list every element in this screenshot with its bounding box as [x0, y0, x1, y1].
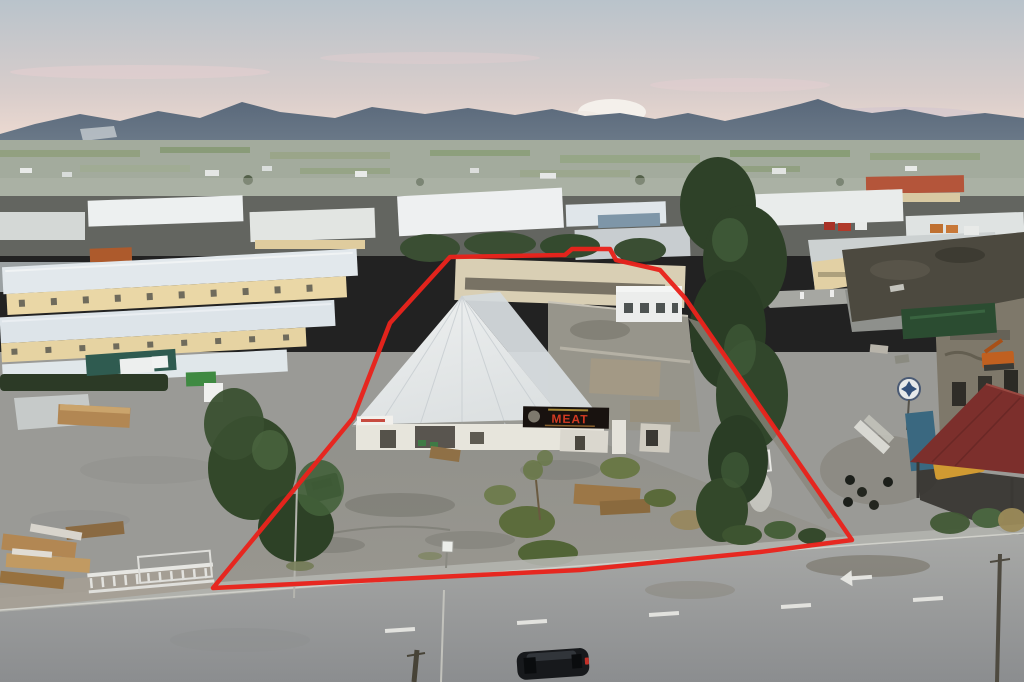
roof-mottle: [870, 260, 930, 280]
tree-highlight: [252, 430, 288, 470]
distant-building: [772, 168, 786, 174]
flat-roof-stain: [570, 320, 630, 340]
distant-building: [355, 171, 367, 177]
scene-canvas: MEAT: [0, 0, 1024, 682]
parked-truck-orange: [930, 224, 943, 233]
parked-truck-red: [824, 222, 835, 230]
conifer-highlight: [721, 452, 749, 488]
field: [870, 153, 980, 160]
cloud-streak: [320, 52, 540, 64]
small-sign-text-line: [361, 419, 385, 422]
tire: [883, 477, 893, 487]
blue-roof: [598, 213, 660, 228]
car-windshield: [524, 657, 537, 674]
tire: [843, 497, 853, 507]
window-hole: [952, 382, 966, 406]
distant-building: [20, 168, 32, 173]
flat-roof-patch: [630, 400, 680, 422]
roadside-bush: [930, 512, 970, 534]
field: [730, 150, 850, 157]
sign-text: MEAT: [551, 412, 588, 427]
field: [80, 165, 190, 172]
roadside-bush: [798, 528, 826, 544]
road-stain: [645, 581, 735, 599]
car-taillight: [585, 657, 589, 664]
weed-bush: [644, 489, 676, 507]
warehouse-wall: [255, 240, 365, 249]
wood-debris-pile: [600, 499, 651, 516]
distant-building: [905, 166, 917, 171]
tire: [857, 487, 867, 497]
tree-row: [614, 238, 666, 262]
crossing-mark: [830, 290, 834, 297]
warehouse-roof: [0, 212, 85, 240]
annex-door: [575, 436, 585, 450]
field: [430, 150, 530, 156]
field: [300, 168, 390, 174]
window: [470, 432, 484, 444]
black-car: [516, 647, 590, 680]
field: [560, 155, 700, 163]
distant-building: [62, 172, 72, 177]
car-rear-window: [571, 654, 582, 669]
sapling-foliage: [537, 450, 553, 466]
road-stain: [806, 555, 930, 577]
crossing-mark: [800, 292, 804, 299]
entrance-doorway: [646, 430, 658, 446]
parked-truck-red: [838, 223, 851, 231]
yard-stain: [345, 493, 455, 517]
tree-cluster: [296, 460, 344, 516]
distant-building: [262, 166, 272, 171]
field: [0, 150, 140, 157]
road-stain: [170, 628, 310, 652]
door: [380, 430, 396, 448]
flat-roof-patch: [589, 358, 661, 397]
small-road-sign: [442, 541, 453, 552]
green-crate: [418, 440, 426, 446]
parked-caravan: [964, 226, 979, 235]
tire: [869, 500, 879, 510]
conifer-highlight: [712, 218, 748, 262]
field: [520, 170, 630, 177]
sign-post: [446, 550, 447, 568]
field: [270, 152, 390, 159]
meat-shop-sign: MEAT: [523, 406, 609, 428]
roadside-bush: [722, 525, 762, 545]
hedge: [0, 374, 168, 391]
tree-row: [464, 232, 536, 256]
cloud-streak: [650, 78, 830, 92]
parked-truck-white: [855, 222, 867, 230]
cloud-streak: [10, 65, 270, 79]
weed-strip: [286, 561, 314, 571]
entrance-pillar: [612, 420, 626, 454]
field: [160, 147, 250, 153]
distant-building: [205, 170, 219, 176]
white-truck: [152, 355, 169, 368]
parked-truck-orange: [946, 225, 958, 233]
weed-bush: [600, 457, 640, 479]
roadside-bush: [764, 521, 796, 539]
warehouse-roof: [250, 208, 376, 242]
weed-bush: [484, 485, 516, 505]
parking-stain: [80, 456, 220, 484]
yard-stain: [425, 531, 515, 549]
aerial-photo: MEAT: [0, 0, 1024, 682]
weed-strip: [418, 552, 442, 560]
weed-bush: [499, 506, 555, 538]
roof-mottle: [935, 247, 985, 263]
white-van: [120, 357, 155, 374]
distant-building: [470, 168, 479, 173]
tire: [845, 475, 855, 485]
warehouse-roof: [88, 195, 244, 226]
